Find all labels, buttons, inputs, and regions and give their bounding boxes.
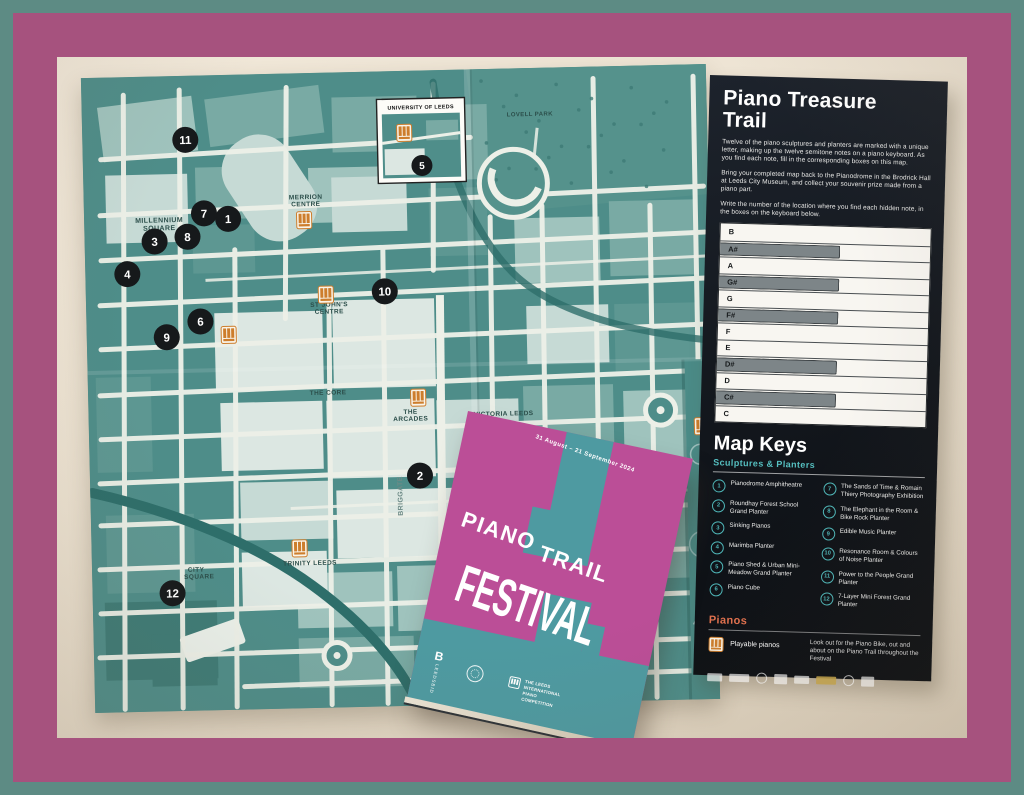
pianos-row: Playable pianos Look out for the Piano B… [708,636,921,666]
map-label: CENTRE [291,201,321,209]
map-key-item-5: 5Piano Shed & Urban Mini-Meadow Grand Pl… [710,560,812,579]
svg-text:8: 8 [184,232,191,244]
playable-piano-icon [708,636,724,652]
panel-intro: Twelve of the piano sculptures and plant… [720,138,934,222]
map-key-label: Sinking Pianos [729,522,770,531]
map-key-label: Edible Music Planter [840,528,897,538]
map-key-number: 9 [822,528,835,541]
map-label: MILLENNIUM [135,217,183,225]
map-key-item-4: 4Marimba Planter [711,541,813,557]
map-label: TRINITY LEEDS [283,559,337,567]
svg-text:9: 9 [163,332,170,344]
map-key-number: 7 [823,482,836,495]
panel-content: Piano Treasure Trail Twelve of the piano… [693,75,948,681]
svg-text:5: 5 [419,161,425,172]
piano-keys-icon [507,676,521,690]
sponsor-logo-4 [774,674,787,684]
intro-paragraph-3: Write the number of the location where y… [720,200,932,223]
sponsor-logos-row [707,671,919,688]
map-label: SQUARE [184,573,215,581]
map-key-item-3: 3Sinking Pianos [711,521,813,537]
map-keys-list: 1Pianodrome Amphitheatre2Roundhay Forest… [709,479,925,617]
map-key-item-1: 1Pianodrome Amphitheatre [712,479,814,495]
piano-location-icon [318,286,333,303]
map-key-label: Pianodrome Amphitheatre [730,480,802,490]
treasure-trail-panel: Piano Treasure Trail Twelve of the piano… [693,75,948,681]
map-key-number: 10 [821,547,834,560]
playable-pianos: Playable pianos [708,636,804,655]
map-keys-title: Map Keys [713,432,926,461]
piano-bike-note: Look out for the Piano Bike, out and abo… [809,639,920,667]
map-key-number: 8 [822,505,835,518]
svg-text:7: 7 [201,209,208,221]
map-label: CENTRE [315,308,345,316]
title-word-piano: PIANO [458,507,539,556]
map-key-number: 11 [820,570,833,583]
map-key-label: The Sands of Time & Romain Thiery Photog… [841,483,925,501]
piano-location-icon [411,389,426,406]
framed-photo: UNIVERSITY OF LEEDS MILLENNIUMSQUAREMERR… [0,0,1024,795]
svg-text:3: 3 [151,237,158,249]
sponsor-logo-7 [843,675,854,686]
panel-title: Piano Treasure Trail [722,87,893,135]
mauve-frame: UNIVERSITY OF LEEDS MILLENNIUMSQUAREMERR… [13,13,1011,782]
map-key-item-8: 8The Elephant in the Room & Bike Rock Pl… [822,505,924,524]
svg-text:12: 12 [166,588,179,600]
map-key-label: Resonance Room & Colours of Noise Plante… [839,548,923,566]
crest-logo [465,664,485,684]
map-key-label: Piano Shed & Urban Mini-Meadow Grand Pla… [728,561,812,579]
map-label: THE CORE [310,389,347,397]
map-key-item-2: 2Roundhay Forest School Grand Planter [712,499,814,518]
piano-location-icon [221,326,236,343]
map-keys-column-2: 7The Sands of Time & Romain Thiery Photo… [819,482,924,617]
leedsbid-initial: B [434,650,445,664]
piano-location-icon [397,124,412,141]
map-key-item-9: 9Edible Music Planter [822,528,924,544]
sponsor-logo-2 [729,674,749,683]
map-key-label: Piano Cube [728,584,761,593]
sponsor-logo-5 [794,675,809,683]
map-key-item-11: 11Power to the People Grand Planter [820,570,922,589]
piano-location-icon [296,211,311,228]
map-key-number: 1 [712,479,725,492]
sponsor-logo-3 [756,673,767,684]
map-key-number: 3 [711,521,724,534]
svg-text:2: 2 [417,471,424,483]
sponsor-logo-1 [707,673,722,681]
photo-of-leaflets: UNIVERSITY OF LEEDS MILLENNIUMSQUAREMERR… [57,57,967,738]
piano-location-icon [292,540,307,557]
map-key-item-6: 6Piano Cube [709,583,811,599]
map-key-number: 6 [709,583,722,596]
map-key-item-10: 10Resonance Room & Colours of Noise Plan… [821,547,923,566]
svg-text:6: 6 [197,317,204,329]
intro-paragraph-2: Bring your completed map back to the Pia… [721,169,934,200]
piano-competition-text: THE LEEDS INTERNATIONAL PIANO COMPETITIO… [521,679,571,711]
playable-pianos-label: Playable pianos [730,641,780,649]
map-key-item-12: 127-Layer Mini Forest Grand Planter [820,592,922,611]
intro-paragraph-1: Twelve of the piano sculptures and plant… [722,138,935,169]
map-label: ARCADES [393,415,428,423]
map-key-item-7: 7The Sands of Time & Romain Thiery Photo… [823,482,925,501]
map-key-label: Power to the People Grand Planter [838,570,922,588]
map-key-number: 4 [711,541,724,554]
map-keys-column-1: 1Pianodrome Amphitheatre2Roundhay Forest… [709,479,814,614]
sponsor-logo-6 [816,676,836,685]
map-key-label: 7-Layer Mini Forest Grand Planter [838,593,922,611]
map-label: LOVELL PARK [507,111,554,118]
svg-text:4: 4 [124,269,131,281]
map-key-label: Roundhay Forest School Grand Planter [730,499,814,517]
svg-text:11: 11 [179,135,192,147]
svg-text:10: 10 [378,286,391,298]
map-key-label: The Elephant in the Room & Bike Rock Pla… [840,506,924,524]
piano-competition-logo: THE LEEDS INTERNATIONAL PIANO COMPETITIO… [505,676,570,712]
map-key-number: 12 [820,592,833,605]
map-key-label: Marimba Planter [729,541,775,550]
keyboard: BA#AG#GF#FED#DC#C [714,222,932,428]
map-label: BRIGGATE [397,476,405,516]
map-key-number: 5 [710,560,723,573]
map-key-number: 2 [712,499,725,512]
sponsor-logo-8 [861,676,874,686]
svg-text:1: 1 [225,214,232,226]
